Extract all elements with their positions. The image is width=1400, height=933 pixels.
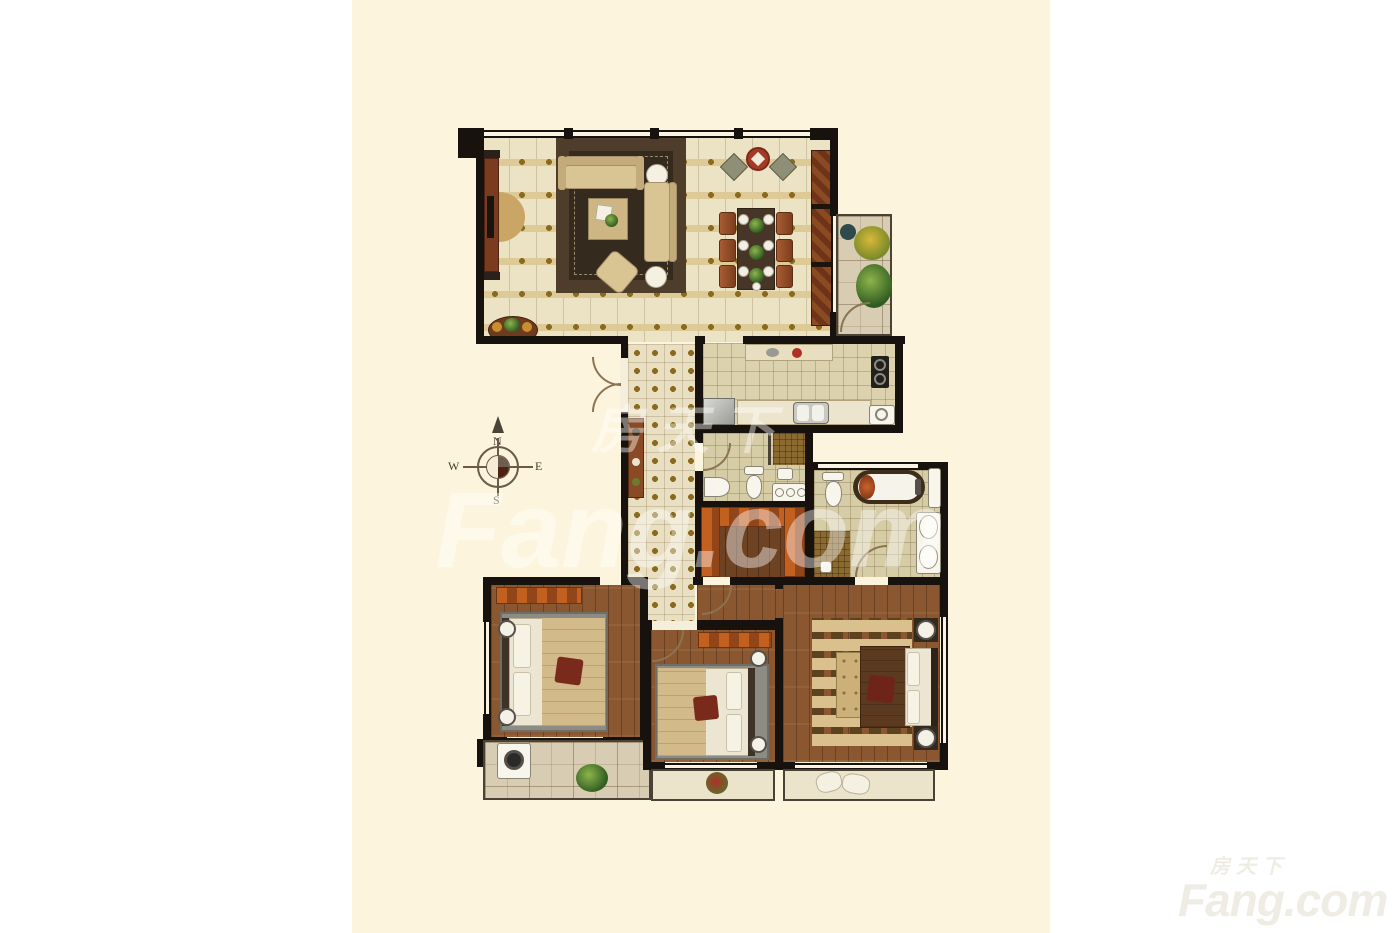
wall-segment <box>697 620 779 630</box>
wall-corner <box>458 128 484 158</box>
decor-plant <box>504 318 520 332</box>
window-mullion <box>650 128 659 139</box>
living-window <box>484 130 812 138</box>
pillow <box>907 652 920 686</box>
nightstand-lamp <box>916 620 936 640</box>
table-plant <box>605 214 618 227</box>
stove-burner <box>874 373 886 385</box>
entry-threshold <box>620 358 628 412</box>
console-decor <box>632 428 640 436</box>
counter-item <box>766 348 779 357</box>
watermark-fang: 房天下 Fang.com <box>1178 850 1396 922</box>
counter-item-red <box>792 348 802 358</box>
wall-segment <box>695 425 903 433</box>
wall-segment <box>743 336 905 344</box>
place-setting <box>738 266 749 277</box>
green-plant <box>856 264 892 308</box>
centerpiece-plant <box>749 218 764 233</box>
flower-pot <box>492 322 502 332</box>
balcony-plant <box>576 764 608 792</box>
wall-segment <box>621 344 628 358</box>
yellow-plant <box>854 226 890 260</box>
heater-dial <box>875 408 888 421</box>
pillow <box>726 672 742 710</box>
master-bath-window <box>818 462 920 470</box>
bed-tray <box>867 675 896 704</box>
bath-flowers <box>859 475 875 499</box>
compass-needle-icon <box>492 416 504 433</box>
watermark-brand-en: Fang.com <box>1178 879 1396 921</box>
nightstand-lamp <box>916 728 936 748</box>
bedroom-window <box>941 617 948 743</box>
wardrobe-shelf <box>718 507 785 527</box>
wall-segment <box>483 577 600 585</box>
wall-segment <box>940 462 948 585</box>
wall-segment <box>621 412 628 585</box>
sink-basin <box>812 405 824 421</box>
sofa-armrest <box>558 156 566 190</box>
tv-cabinet-cap <box>482 272 500 280</box>
nightstand-lamp <box>750 736 767 753</box>
compass: N W E S <box>448 412 544 508</box>
console-decor <box>632 458 640 466</box>
pillow <box>907 690 920 724</box>
compass-south-label: S <box>493 494 500 506</box>
shower-area <box>773 433 805 465</box>
pillow <box>726 714 742 752</box>
toilet-tank <box>822 472 844 481</box>
flower-pot <box>840 224 856 240</box>
tv-screen <box>487 196 494 238</box>
dining-chair <box>719 265 736 288</box>
cabinet-divider <box>811 262 833 267</box>
wall-segment <box>476 156 484 344</box>
place-setting <box>763 240 774 251</box>
wall-segment <box>775 577 783 589</box>
toilet-bowl <box>825 481 842 507</box>
wall-segment <box>830 138 838 216</box>
centerpiece-plant <box>749 268 764 283</box>
nightstand-lamp <box>498 708 516 726</box>
toilet-tank <box>744 466 764 475</box>
chaise-sofa <box>644 182 670 262</box>
place-setting <box>763 266 774 277</box>
vanity-sink <box>919 545 938 569</box>
compass-east-label: E <box>535 460 542 472</box>
wall-segment <box>888 577 948 585</box>
dining-chair <box>776 239 793 262</box>
place-setting <box>763 214 774 225</box>
wall-segment <box>476 336 628 344</box>
bed-tray <box>693 695 719 721</box>
compass-west-label: W <box>448 460 459 472</box>
dining-chair <box>776 212 793 235</box>
wall-segment <box>940 577 948 617</box>
bedroom-window <box>484 622 491 714</box>
wall-segment <box>895 336 903 433</box>
tv-cabinet-cap <box>482 150 500 158</box>
wall-segment <box>730 577 855 585</box>
flower-pot <box>522 322 532 332</box>
nightstand-lamp <box>498 620 516 638</box>
vanity-sink <box>919 515 938 539</box>
window-mullion <box>564 128 573 139</box>
partition <box>768 433 771 465</box>
vanity-knob <box>775 488 784 497</box>
door-threshold <box>652 621 697 630</box>
place-setting <box>738 214 749 225</box>
vase <box>752 282 761 291</box>
bath-cabinet <box>928 468 941 508</box>
page-background: N W E S 房天下 Fang.com 房天下 Fang.com <box>0 0 1400 933</box>
pillow <box>513 672 531 716</box>
window-mullion <box>734 128 743 139</box>
sink-basin <box>797 405 809 421</box>
bench-cushion <box>698 632 772 648</box>
shower-fixture <box>820 561 832 573</box>
wardrobe-column <box>701 507 720 577</box>
wash-basin <box>704 477 730 497</box>
toilet-bowl <box>746 475 762 499</box>
wall-segment <box>775 618 783 769</box>
kitchen-counter <box>745 344 833 361</box>
dining-chair <box>776 265 793 288</box>
bed-tray <box>554 656 583 685</box>
wall-segment <box>695 336 703 443</box>
sofa-armrest <box>636 156 644 190</box>
place-setting <box>738 240 749 251</box>
washer-door <box>504 750 524 770</box>
wall-segment <box>806 462 814 585</box>
console-decor <box>632 478 640 486</box>
wardrobe-column <box>784 507 805 577</box>
nightstand-lamp <box>750 650 767 667</box>
wall-segment <box>628 577 648 585</box>
small-basin <box>777 468 793 480</box>
dining-chair <box>719 239 736 262</box>
bed-bench <box>836 652 862 718</box>
stove-burner <box>874 359 886 371</box>
tub-faucet <box>915 479 921 495</box>
refrigerator <box>703 398 735 425</box>
wall-segment <box>483 577 491 622</box>
balcony-flower <box>706 772 728 794</box>
three-seat-sofa <box>564 165 638 189</box>
dining-chair <box>719 212 736 235</box>
vanity-knob <box>786 488 795 497</box>
round-side-table <box>645 266 667 288</box>
bench-cushion <box>496 587 582 604</box>
bed-headboard <box>931 648 938 728</box>
centerpiece-plant <box>749 245 764 260</box>
wall-segment <box>643 620 651 769</box>
wall-segment <box>693 577 702 585</box>
